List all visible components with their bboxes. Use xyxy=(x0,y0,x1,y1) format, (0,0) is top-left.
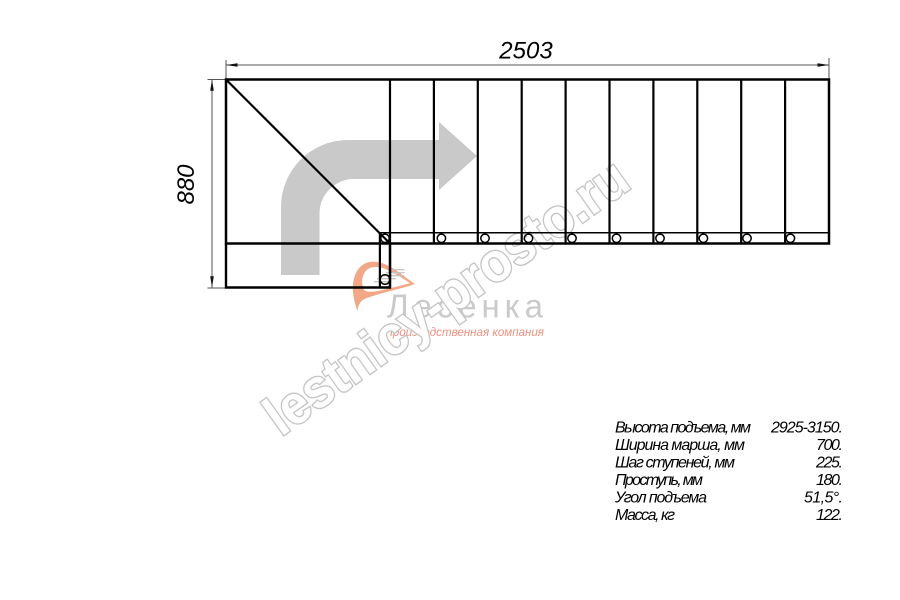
svg-text:Высота подъема, мм: Высота подъема, мм xyxy=(615,419,751,436)
svg-text:Проступь, мм: Проступь, мм xyxy=(615,472,703,489)
svg-text:Шаг ступеней, мм: Шаг ступеней, мм xyxy=(615,455,735,472)
svg-text:880: 880 xyxy=(173,164,200,205)
svg-text:225.: 225. xyxy=(815,455,843,472)
svg-text:Ширина марша, мм: Ширина марша, мм xyxy=(615,437,745,454)
svg-text:Угол подъема: Угол подъема xyxy=(614,490,707,507)
svg-text:700.: 700. xyxy=(816,437,843,454)
svg-text:2503: 2503 xyxy=(498,38,553,65)
svg-text:180.: 180. xyxy=(816,472,843,489)
svg-text:51,5°.: 51,5°. xyxy=(804,490,843,507)
svg-text:122.: 122. xyxy=(816,507,843,524)
svg-text:Масса, кг: Масса, кг xyxy=(615,507,675,524)
svg-text:2925-3150.: 2925-3150. xyxy=(770,419,843,436)
